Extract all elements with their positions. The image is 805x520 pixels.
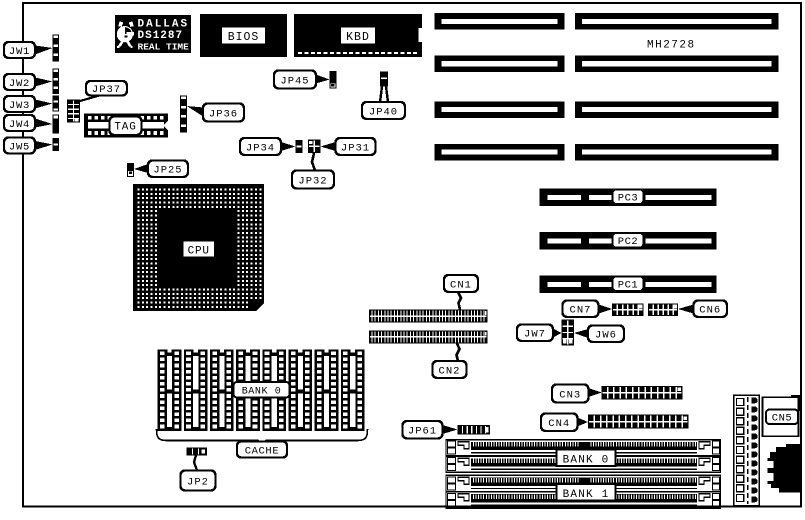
svg-text:CN6: CN6 xyxy=(699,305,721,317)
svg-text:PC2: PC2 xyxy=(618,236,638,248)
svg-text:JP45: JP45 xyxy=(280,75,309,87)
svg-text:DS1287: DS1287 xyxy=(138,30,184,42)
svg-text:DALLAS: DALLAS xyxy=(138,19,190,31)
svg-text:JP37: JP37 xyxy=(92,84,121,96)
svg-text:CN7: CN7 xyxy=(570,305,592,317)
svg-text:JW6: JW6 xyxy=(595,330,617,342)
svg-text:CN5: CN5 xyxy=(772,413,792,425)
svg-text:JW2: JW2 xyxy=(9,78,30,90)
svg-text:BANK 0: BANK 0 xyxy=(563,454,610,466)
svg-text:CN4: CN4 xyxy=(548,418,570,430)
svg-text:JP32: JP32 xyxy=(298,175,327,187)
svg-text:JP36: JP36 xyxy=(209,108,238,120)
svg-text:REAL TIME: REAL TIME xyxy=(138,41,190,52)
svg-text:PC3: PC3 xyxy=(618,193,638,205)
svg-text:JW3: JW3 xyxy=(9,100,30,112)
svg-text:TAG: TAG xyxy=(114,122,136,134)
svg-text:JP61: JP61 xyxy=(408,426,437,438)
svg-text:BIOS: BIOS xyxy=(228,31,260,44)
svg-text:JP34: JP34 xyxy=(246,142,275,154)
svg-text:PC1: PC1 xyxy=(618,280,638,292)
svg-text:CN2: CN2 xyxy=(439,365,461,377)
svg-text:MH2728: MH2728 xyxy=(647,40,696,52)
svg-text:JW1: JW1 xyxy=(9,46,30,58)
svg-text:BANK 1: BANK 1 xyxy=(563,489,610,501)
svg-text:BANK 0: BANK 0 xyxy=(242,386,282,397)
svg-text:JP31: JP31 xyxy=(341,142,370,154)
svg-text:JW5: JW5 xyxy=(9,141,30,153)
svg-text:JW7: JW7 xyxy=(524,329,546,341)
svg-text:CACHE: CACHE xyxy=(245,445,280,457)
svg-text:CN3: CN3 xyxy=(559,389,581,401)
svg-text:JP25: JP25 xyxy=(153,165,182,177)
svg-text:CPU: CPU xyxy=(188,245,210,257)
svg-text:JW4: JW4 xyxy=(9,119,30,131)
svg-text:CN1: CN1 xyxy=(450,279,472,291)
svg-text:JP2: JP2 xyxy=(187,476,209,488)
svg-text:KBD: KBD xyxy=(346,31,370,44)
svg-text:JP40: JP40 xyxy=(369,106,398,118)
